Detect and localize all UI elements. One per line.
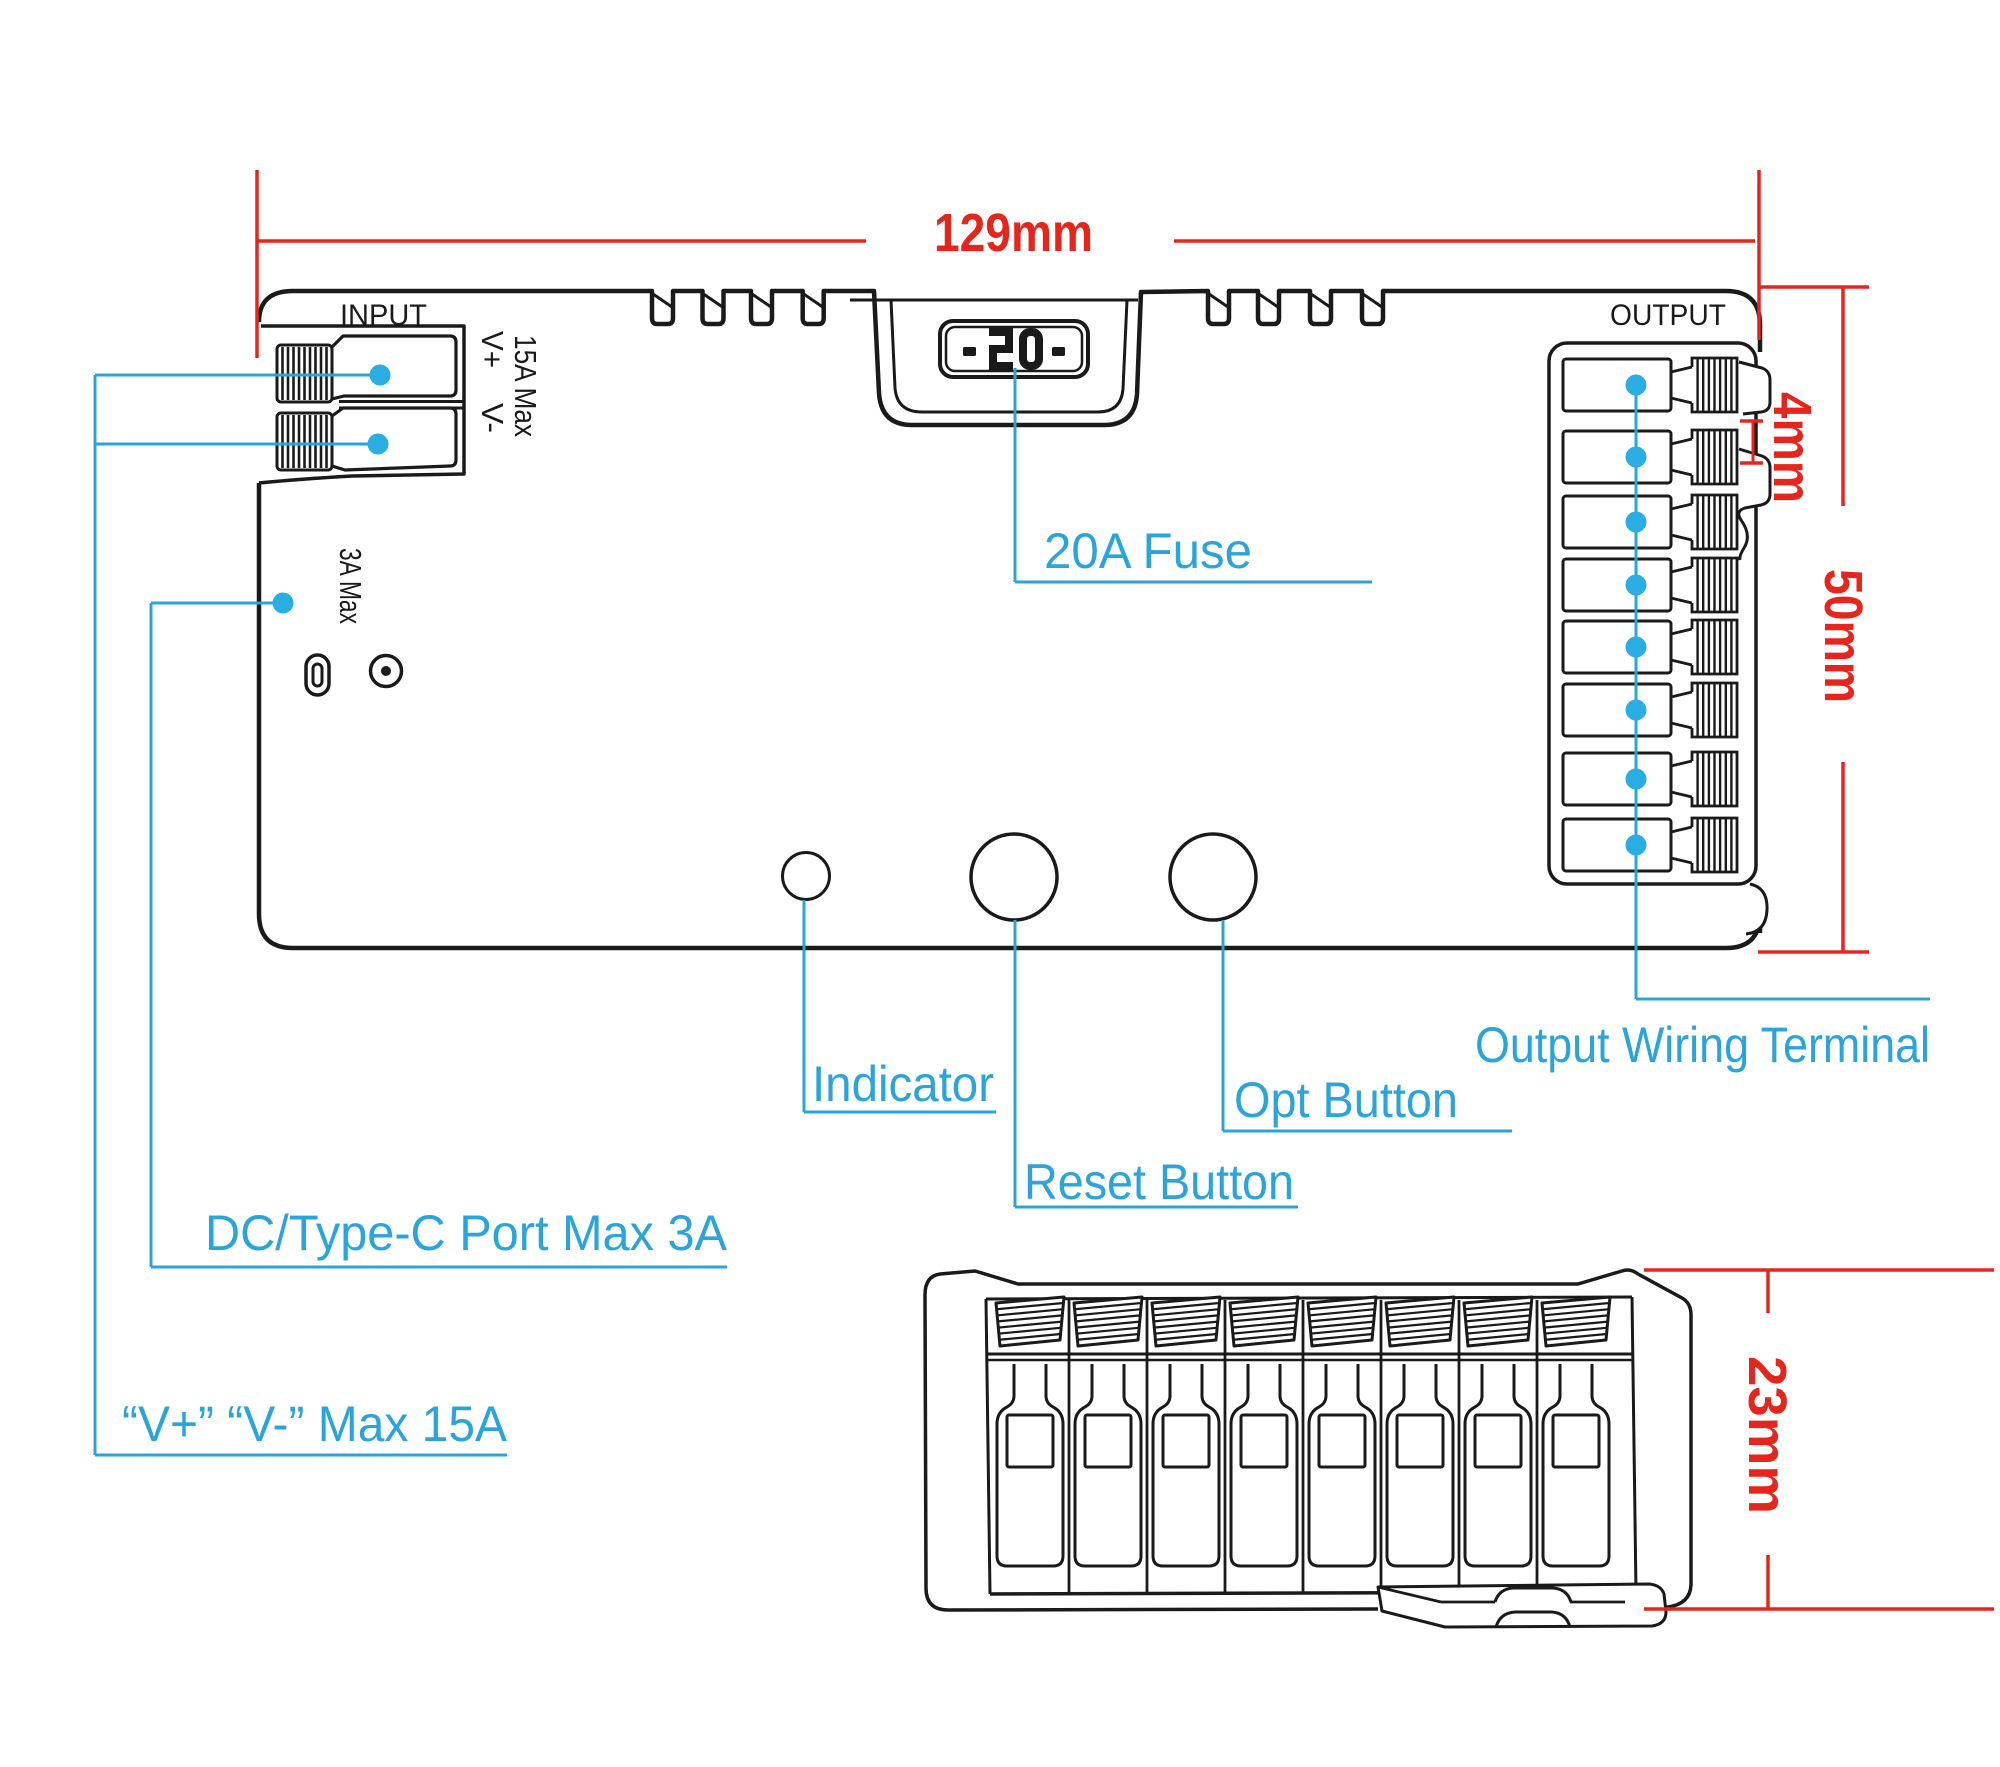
svg-text:129mm: 129mm [934,203,1093,263]
svg-text:50mm: 50mm [1813,569,1873,703]
svg-text:“V+” “V-” Max 15A: “V+” “V-” Max 15A [122,1396,508,1452]
svg-text:23mm: 23mm [1737,1356,1797,1514]
svg-text:V-: V- [475,403,510,433]
svg-text:3A Max: 3A Max [333,548,368,624]
svg-text:4mm: 4mm [1762,392,1822,503]
svg-text:Reset Button: Reset Button [1024,1154,1294,1210]
svg-text:OUTPUT: OUTPUT [1610,299,1726,332]
svg-text:V+: V+ [475,331,510,368]
svg-text:Indicator: Indicator [812,1056,994,1112]
svg-text:Output Wiring Terminal: Output Wiring Terminal [1475,1017,1930,1073]
svg-text:Opt Button: Opt Button [1234,1072,1458,1128]
svg-text:DC/Type-C Port Max 3A: DC/Type-C Port Max 3A [205,1205,728,1261]
svg-text:20A Fuse: 20A Fuse [1044,523,1252,579]
svg-text:15A Max: 15A Max [508,335,543,437]
